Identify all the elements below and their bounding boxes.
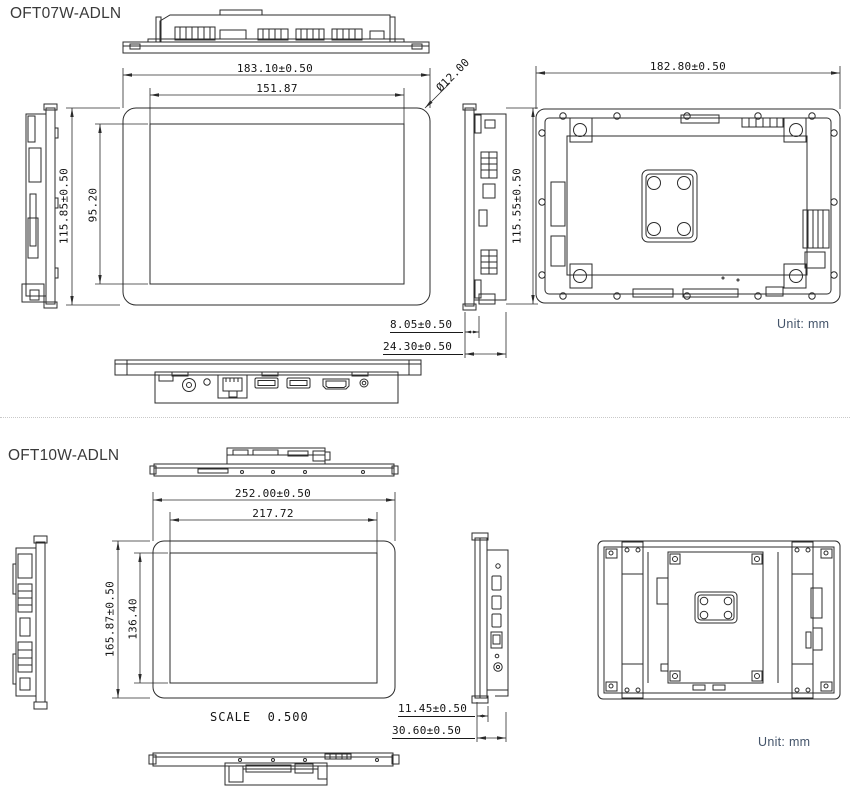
dimline-10w-depths — [477, 702, 506, 742]
dimline-07w-display-height — [95, 124, 148, 284]
dimline-10w-overall-width — [153, 492, 395, 541]
dimline-07w-overall-height — [66, 108, 120, 305]
dimline-07w-rear-height — [506, 108, 538, 304]
dimline-07w-overall-width — [123, 68, 430, 108]
dimline-07w-rear-width — [536, 66, 840, 109]
drawing-sheet: OFT07W-ADLN — [0, 0, 850, 797]
dimline-10w-display-width — [170, 512, 377, 553]
dimline-07w-display-width — [150, 88, 404, 124]
dimline-10w-display-height — [134, 553, 168, 683]
leader-07w-corner — [425, 83, 450, 108]
dimension-annotations — [0, 0, 850, 797]
dimline-07w-depths — [465, 312, 506, 358]
dimline-10w-overall-height — [112, 541, 150, 698]
